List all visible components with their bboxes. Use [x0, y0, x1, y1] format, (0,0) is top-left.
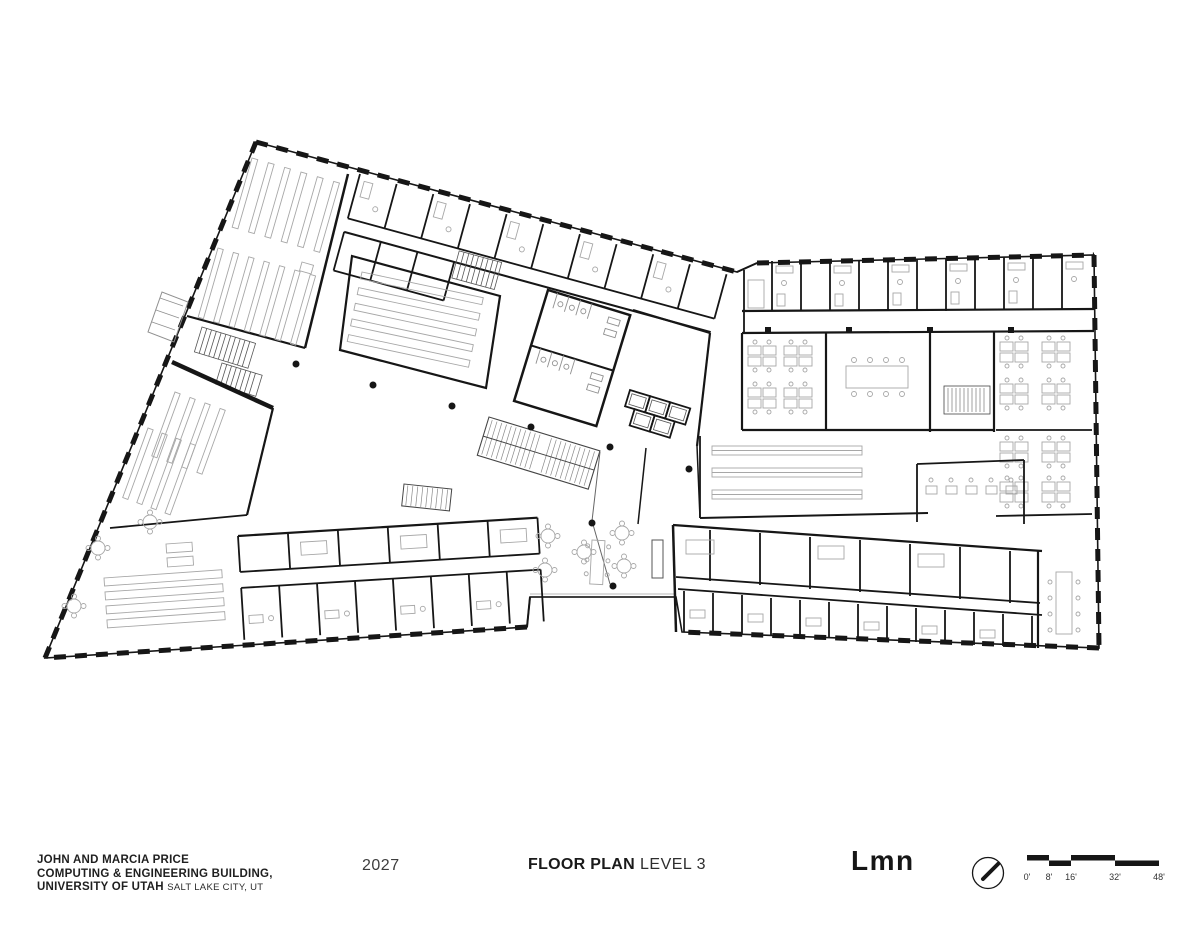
- project-name-line2: COMPUTING & ENGINEERING BUILDING,: [37, 868, 273, 882]
- scale-label-48: 48': [1153, 872, 1165, 882]
- north-arrow-icon: [973, 858, 1004, 889]
- project-name-line1: JOHN AND MARCIA PRICE: [37, 854, 273, 868]
- scale-label-0: 0': [1024, 872, 1031, 882]
- drawing-year: 2027: [362, 857, 400, 875]
- sheet-title-level: LEVEL 3: [640, 856, 706, 873]
- floor-plan-drawing: [0, 0, 1200, 800]
- sheet-title-main: FLOOR PLAN: [528, 856, 635, 873]
- scale-label-16: 16': [1065, 872, 1077, 882]
- project-title-block: JOHN AND MARCIA PRICE COMPUTING & ENGINE…: [37, 854, 273, 895]
- drawing-sheet: JOHN AND MARCIA PRICE COMPUTING & ENGINE…: [0, 0, 1200, 927]
- project-name-line3: UNIVERSITY OF UTAH SALT LAKE CITY, UT: [37, 881, 273, 895]
- building-facade: [45, 142, 1099, 658]
- scale-label-32: 32': [1109, 872, 1121, 882]
- lmn-logo: Lmn: [851, 845, 915, 877]
- project-location: SALT LAKE CITY, UT: [167, 882, 263, 893]
- graphic-scale-bar: 0' 8' 16' 32' 48': [1024, 855, 1166, 882]
- sheet-title: FLOOR PLANLEVEL 3: [528, 856, 706, 874]
- north-arrow-and-scalebar: 0' 8' 16' 32' 48': [950, 843, 1200, 903]
- scale-label-8: 8': [1046, 872, 1053, 882]
